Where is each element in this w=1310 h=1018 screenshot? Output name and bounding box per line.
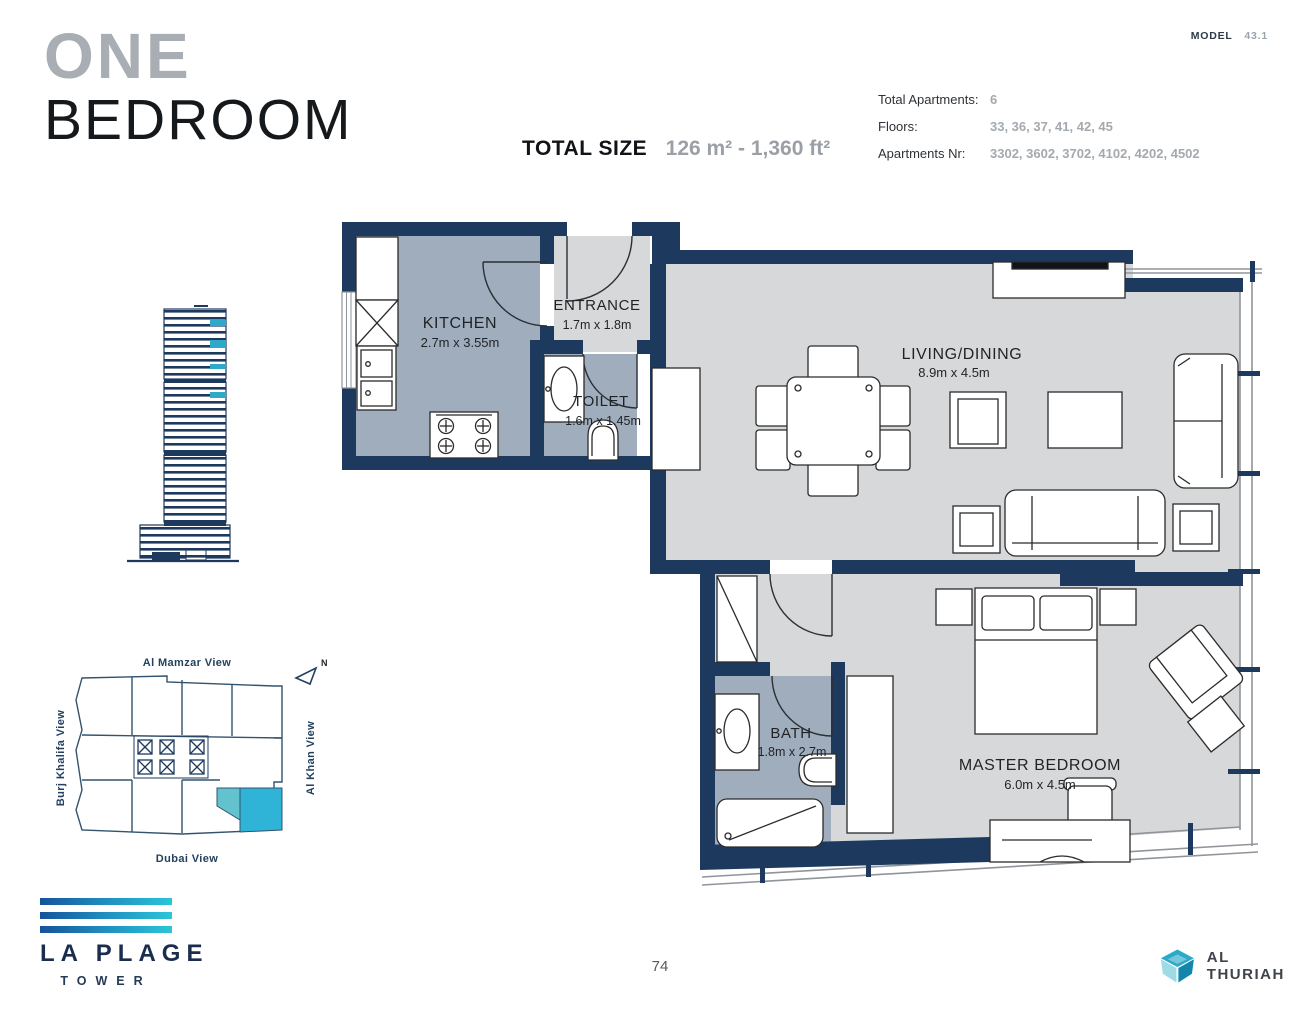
tower-elevation-illustration bbox=[122, 296, 244, 568]
title-line-one: ONE bbox=[44, 24, 353, 88]
toilet-sink bbox=[544, 356, 584, 422]
site-key-plan: Al Mamzar View Burj Khalifa View Al Khan… bbox=[42, 640, 334, 884]
kitchen-window bbox=[342, 292, 356, 388]
logo-stripe bbox=[40, 912, 172, 919]
info-label: Total Apartments: bbox=[878, 92, 990, 107]
room-dims-master-bedroom: 6.0m x 4.5m bbox=[1004, 777, 1076, 792]
entrance-floor bbox=[554, 236, 650, 352]
info-row-apartment-numbers: Apartments Nr: 3302, 3602, 3702, 4102, 4… bbox=[878, 146, 1200, 161]
site-label-top: Al Mamzar View bbox=[143, 657, 232, 669]
room-dims-bath: 1.8m x 2.7m bbox=[758, 745, 827, 759]
bath-sink bbox=[715, 694, 759, 770]
bed bbox=[975, 588, 1097, 734]
room-label-kitchen: KITCHEN bbox=[423, 315, 497, 332]
page-title: ONE BEDROOM bbox=[44, 24, 353, 149]
room-label-master-bedroom: MASTER BEDROOM bbox=[959, 757, 1121, 774]
dining-table bbox=[787, 377, 880, 465]
room-label-living: LIVING/DINING bbox=[902, 346, 1023, 363]
info-row-total-apartments: Total Apartments: 6 bbox=[878, 92, 1200, 107]
model-value: 43.1 bbox=[1244, 30, 1268, 42]
logo-stripe bbox=[40, 898, 172, 905]
page-number: 74 bbox=[635, 958, 685, 975]
window-sofa bbox=[1174, 354, 1238, 488]
nightstand bbox=[936, 589, 972, 625]
developer-logo: AL THURIAH bbox=[1158, 946, 1310, 986]
info-label: Floors: bbox=[878, 119, 990, 134]
svg-text:N: N bbox=[321, 658, 328, 668]
info-value: 6 bbox=[990, 92, 997, 107]
info-value: 33, 36, 37, 41, 42, 45 bbox=[990, 119, 1113, 134]
nightstand bbox=[1100, 589, 1136, 625]
wardrobe bbox=[847, 676, 893, 833]
floor-plan-page: ONE BEDROOM TOTAL SIZE 126 m² - 1,360 ft… bbox=[0, 0, 1310, 1018]
la-plage-tower-logo: LA PLAGE TOWER bbox=[40, 898, 172, 988]
room-dims-living: 8.9m x 4.5m bbox=[918, 365, 990, 380]
closet bbox=[717, 576, 757, 662]
title-line-bedroom: BEDROOM bbox=[44, 92, 353, 149]
total-size: TOTAL SIZE 126 m² - 1,360 ft² bbox=[522, 137, 830, 161]
room-label-entrance: ENTRANCE bbox=[553, 297, 640, 314]
info-value: 3302, 3602, 3702, 4102, 4202, 4502 bbox=[990, 146, 1200, 161]
bathtub bbox=[717, 799, 823, 847]
logo-stripe bbox=[40, 926, 172, 933]
tv-console bbox=[993, 262, 1125, 298]
side-table bbox=[1173, 504, 1219, 551]
armchair bbox=[950, 392, 1006, 448]
site-label-right: Al Khan View bbox=[305, 721, 317, 795]
room-dims-entrance: 1.7m x 1.8m bbox=[563, 318, 632, 332]
info-label: Apartments Nr: bbox=[878, 146, 990, 161]
stove bbox=[430, 412, 498, 458]
model-label: MODEL bbox=[1191, 30, 1233, 42]
site-label-bottom: Dubai View bbox=[156, 853, 219, 865]
room-dims-toilet: 1.6m x 1.45m bbox=[565, 414, 641, 428]
desk bbox=[990, 820, 1130, 862]
model-line: MODEL 43.1 bbox=[1191, 30, 1268, 42]
info-row-floors: Floors: 33, 36, 37, 41, 42, 45 bbox=[878, 119, 1200, 134]
kitchen-sink bbox=[357, 346, 396, 410]
developer-name: AL THURIAH bbox=[1207, 949, 1310, 983]
floor-plan-drawing: KITCHEN 2.7m x 3.55m ENTRANCE 1.7m x 1.8… bbox=[340, 210, 1265, 910]
al-thuriah-cube-icon bbox=[1158, 946, 1197, 986]
north-arrow: N bbox=[296, 658, 328, 684]
highlighted-unit bbox=[240, 788, 282, 832]
logo-name: LA PLAGE bbox=[40, 940, 172, 968]
kitchen-counter bbox=[356, 237, 398, 346]
side-table bbox=[953, 506, 1000, 553]
site-label-left: Burj Khalifa View bbox=[55, 710, 67, 806]
room-label-toilet: TOILET bbox=[573, 393, 629, 410]
coffee-table bbox=[1048, 392, 1122, 448]
main-sofa bbox=[1005, 490, 1165, 556]
logo-subname: TOWER bbox=[40, 974, 172, 988]
room-label-bath: BATH bbox=[770, 725, 811, 742]
service-column bbox=[652, 368, 700, 470]
room-dims-kitchen: 2.7m x 3.55m bbox=[421, 335, 500, 350]
total-size-value: 126 m² - 1,360 ft² bbox=[666, 137, 831, 160]
total-size-label: TOTAL SIZE bbox=[522, 137, 647, 160]
apartment-info: Total Apartments: 6 Floors: 33, 36, 37, … bbox=[878, 92, 1200, 173]
